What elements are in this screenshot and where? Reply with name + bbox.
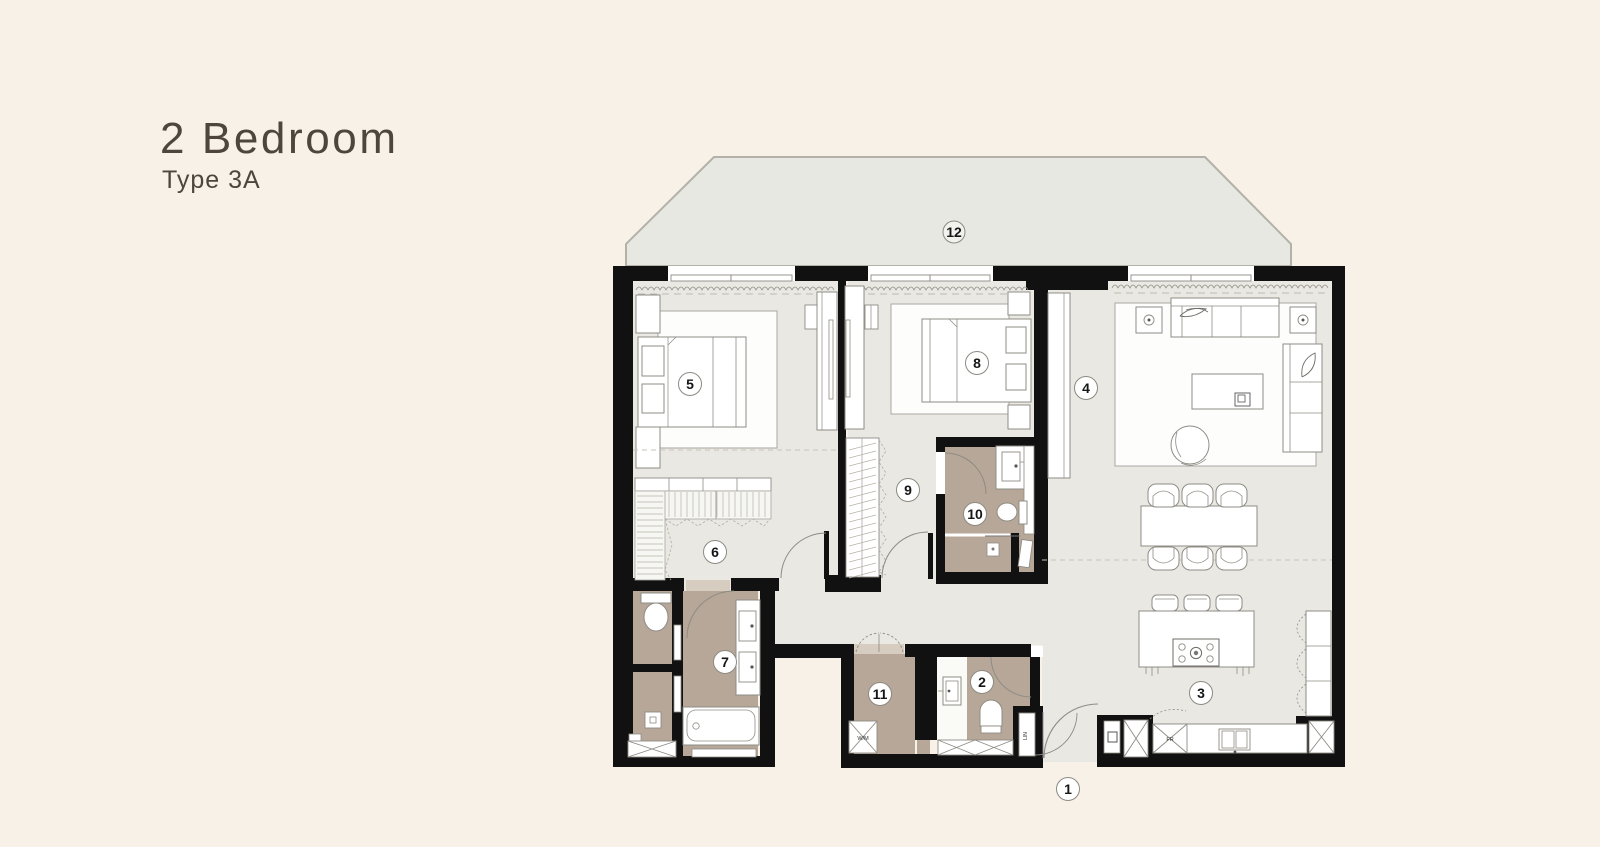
svg-text:11: 11 [873, 686, 888, 702]
svg-text:8: 8 [973, 355, 981, 371]
svg-text:2: 2 [978, 674, 986, 690]
svg-text:6: 6 [711, 544, 719, 560]
svg-text:7: 7 [721, 654, 729, 670]
svg-text:9: 9 [904, 482, 912, 498]
svg-text:10: 10 [967, 506, 983, 522]
svg-text:1: 1 [1064, 781, 1072, 797]
svg-text:LIN: LIN [1023, 732, 1029, 740]
svg-text:4: 4 [1082, 380, 1090, 396]
svg-text:2 Bedroom: 2 Bedroom [160, 114, 399, 163]
svg-text:3: 3 [1197, 685, 1205, 701]
svg-text:5: 5 [686, 376, 694, 392]
svg-text:12: 12 [946, 224, 962, 240]
svg-text:Type 3A: Type 3A [162, 166, 261, 194]
svg-text:FR: FR [1166, 737, 1173, 743]
svg-text:W/M: W/M [857, 736, 869, 742]
